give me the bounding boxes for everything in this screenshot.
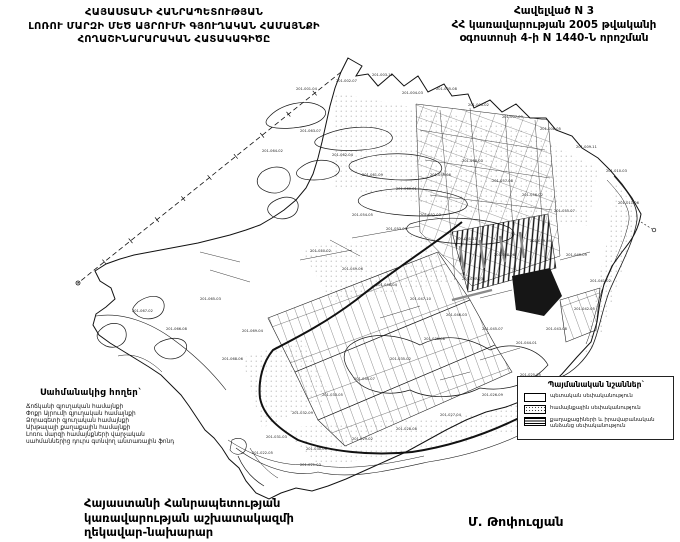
parcel-code-label: 201-009-11 bbox=[576, 145, 597, 149]
parcel-code-label: 201-026-09 bbox=[482, 393, 504, 397]
parcel-code-label: 201-048-04 bbox=[376, 283, 398, 287]
parcel-code-label: 201-011-06 bbox=[618, 201, 640, 205]
legend-title: Պայմանական նշաններ` bbox=[524, 380, 669, 389]
parcel-code-label: 201-063-07 bbox=[300, 129, 321, 133]
adjacent-land-item: Ձորագետի գյուղական համայնքի bbox=[26, 418, 244, 425]
signature-name: Մ. Թոփուզյան bbox=[468, 514, 564, 529]
parcel-code-label: 201-041-02 bbox=[590, 279, 611, 283]
parcel-code-label: 201-057-08 bbox=[492, 179, 514, 183]
parcel-code-label: 201-067-02 bbox=[132, 309, 153, 313]
parcel-code-label: 201-053-09 bbox=[386, 227, 408, 231]
parcel-code-label: 201-050-02 bbox=[310, 249, 331, 253]
adjacent-land-item: Լոռու մարզի համայնքների վարչական bbox=[26, 432, 244, 439]
parcel-code-label: 201-046-03 bbox=[446, 313, 467, 317]
parcel-code-label: 201-055-07 bbox=[554, 209, 575, 213]
legend-item: քաղաքացիների և իրավաբանական անձանց սեփակ… bbox=[524, 417, 669, 430]
boundary-marker-symbol bbox=[652, 228, 656, 232]
parcel-code-label: 201-033-05 bbox=[322, 393, 343, 397]
adjacent-land-item: Ախթալայի քաղաքային համայնքի bbox=[26, 425, 244, 432]
legend-item-label: համայնքային սեփականություն bbox=[550, 405, 641, 411]
parcel-code-label: 201-030-06 bbox=[306, 447, 328, 451]
parcel-code-label: 201-069-04 bbox=[242, 329, 264, 333]
legend-item-label: պետական սեփականություն bbox=[550, 393, 633, 399]
parcel-code-label: 201-007-09 bbox=[502, 115, 524, 119]
scanned-cadastral-plan-page: 201-001-04201-002-07201-003-12201-004-03… bbox=[0, 0, 680, 542]
parcel-code-label: 201-047-10 bbox=[410, 297, 432, 301]
legend-item-label: քաղաքացիների և իրավաբանական անձանց սեփակ… bbox=[550, 417, 669, 430]
title-line: ՀԱՅԱՍՏԱՆԻ ՀԱՆՐԱՊԵՏՈՒԹՅԱՆ bbox=[18, 6, 330, 20]
parcel-code-label: 201-002-07 bbox=[336, 79, 357, 83]
parcel-code-label: 201-027-04 bbox=[440, 413, 462, 417]
adjacent-lands-title: Սահմանակից հողեր` bbox=[40, 388, 244, 398]
issuer-line: ղեկավար-նախարար bbox=[84, 525, 294, 540]
parcel-code-label: 201-039-04 bbox=[530, 239, 552, 243]
parcel-code-label: 201-059-06 bbox=[430, 173, 452, 177]
parcel-code-label: 201-036-08 bbox=[424, 337, 446, 341]
issuer-line: Հայաստանի Հանրապետության bbox=[84, 496, 294, 511]
issuer-block: Հայաստանի Հանրապետության կառավարության ա… bbox=[84, 496, 294, 540]
state-property-swatch-icon bbox=[524, 393, 546, 402]
parcel-code-label: 201-068-06 bbox=[222, 357, 244, 361]
parcel-code-label: 201-054-05 bbox=[352, 213, 373, 217]
legend-item: համայնքային սեփականություն bbox=[524, 405, 669, 414]
parcel-code-label: 201-005-08 bbox=[436, 87, 458, 91]
village-area bbox=[512, 268, 562, 316]
parcel-code-label: 201-008-05 bbox=[540, 127, 561, 131]
parcel-code-label: 201-044-01 bbox=[516, 341, 537, 345]
parcel-code-label: 201-040-09 bbox=[566, 253, 588, 257]
annex-line: ՀՀ կառավարության 2005 թվականի bbox=[428, 19, 680, 33]
cadastral-map: 201-001-04201-002-07201-003-12201-004-03… bbox=[0, 0, 680, 542]
parcel-code-label: 201-006-02 bbox=[468, 103, 489, 107]
parcel-code-label: 201-051-11 bbox=[456, 237, 477, 241]
title-line: ՀՈՂԱՇԻՆԱՐԱՐԱԿԱՆ ՀԱՏԱԿԱԳԻԾԸ bbox=[18, 33, 330, 47]
private-property-swatch-icon bbox=[524, 417, 546, 426]
issuer-line: կառավարության աշխատակազմի bbox=[84, 511, 294, 526]
annex-reference: Հավելված N 3 ՀՀ կառավարության 2005 թվակա… bbox=[428, 5, 680, 46]
parcel-code-label: 201-021-03 bbox=[300, 463, 321, 467]
parcel-code-label: 201-029-02 bbox=[352, 437, 373, 441]
parcel-code-label: 201-028-08 bbox=[396, 427, 418, 431]
adjacent-land-item: սահմաններից դուրս գտնվող անտառային ֆոնդ bbox=[26, 439, 244, 446]
community-property-swatch-icon bbox=[524, 405, 546, 414]
parcel-code-label: 201-052-03 bbox=[420, 213, 441, 217]
parcel-code-label: 201-066-08 bbox=[166, 327, 188, 331]
parcel-code-label: 201-004-03 bbox=[402, 91, 423, 95]
title-line: ԼՈՌՈՒ ՄԱՐԶԻ ՄԵԾ ԱՅՐՈՒՄԻ ԳՅՈՒՂԱԿԱՆ ՀԱՄԱՅՆ… bbox=[18, 20, 330, 34]
parcel-code-label: 201-022-05 bbox=[252, 451, 273, 455]
annex-line: Հավելված N 3 bbox=[428, 5, 680, 19]
parcel-code-label: 201-001-04 bbox=[296, 87, 318, 91]
parcel-code-label: 201-064-02 bbox=[262, 149, 283, 153]
parcel-code-label: 201-032-09 bbox=[292, 411, 314, 415]
parcel-code-label: 201-058-03 bbox=[462, 159, 483, 163]
adjacent-lands-legend: Սահմանակից հողեր` Ճոճկանի գյուղական համա… bbox=[26, 388, 244, 446]
parcel-code-label: 201-065-03 bbox=[200, 297, 221, 301]
document-title: ՀԱՅԱՍՏԱՆԻ ՀԱՆՐԱՊԵՏՈՒԹՅԱՆ ԼՈՌՈՒ ՄԱՐԶԻ ՄԵԾ… bbox=[18, 6, 330, 47]
parcel-code-label: 201-062-04 bbox=[332, 153, 354, 157]
adjacent-land-item: Փոքր Այրումի գյուղական համայնքի bbox=[26, 411, 244, 418]
parcel-code-label: 201-056-02 bbox=[522, 193, 543, 197]
parcel-code-label: 201-010-03 bbox=[606, 169, 627, 173]
parcel-code-label: 201-060-01 bbox=[396, 187, 417, 191]
legend-item: պետական սեփականություն bbox=[524, 393, 669, 402]
parcel-code-label: 201-045-07 bbox=[482, 327, 503, 331]
parcel-code-label: 201-042-05 bbox=[574, 307, 595, 311]
parcel-code-label: 201-049-06 bbox=[342, 267, 364, 271]
parcel-code-label: 201-034-07 bbox=[354, 377, 375, 381]
parcel-code-label: 201-031-03 bbox=[266, 435, 287, 439]
adjacent-land-item: Ճոճկանի գյուղական համայնքի bbox=[26, 404, 244, 411]
parcel-code-label: 201-043-08 bbox=[546, 327, 568, 331]
conventional-signs-legend: Պայմանական նշաններ` պետական սեփականությո… bbox=[517, 376, 674, 440]
parcel-code-label: 201-061-09 bbox=[362, 173, 384, 177]
parcel-code-label: 201-035-02 bbox=[390, 357, 411, 361]
parcel-code-label: 201-003-12 bbox=[372, 73, 393, 77]
parcel-code-label: 201-038-06 bbox=[494, 253, 516, 257]
annex-line: օգոստոսի 4-ի N 1440-Ն որոշման bbox=[428, 32, 680, 46]
parcel-code-label: 201-037-03 bbox=[462, 277, 483, 281]
